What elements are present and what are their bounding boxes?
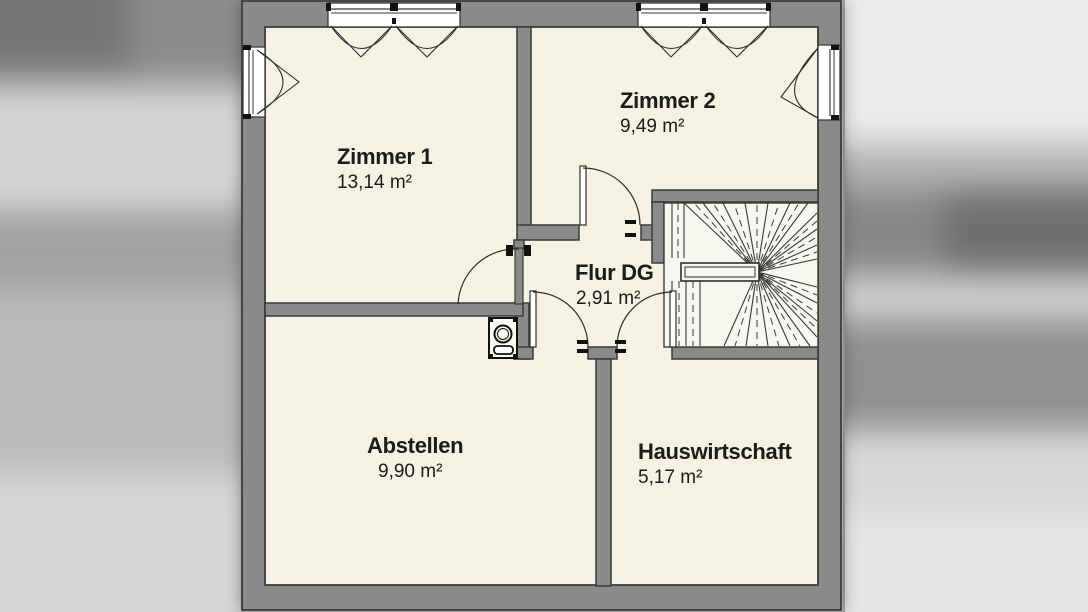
winder-staircase-icon [664, 203, 818, 347]
room-label-hauswirtschaft: Hauswirtschaft 5,17 m² [638, 440, 792, 488]
room-area: 5,17 m² [638, 468, 792, 488]
room-label-flur-dg: Flur DG 2,91 m² [575, 261, 654, 309]
room-label-zimmer-2: Zimmer 2 9,49 m² [620, 89, 715, 137]
room-area: 2,91 m² [576, 289, 654, 309]
room-area: 9,90 m² [378, 462, 463, 482]
room-area: 9,49 m² [620, 117, 715, 137]
floor-plan-drawing [0, 0, 1088, 612]
room-name: Flur DG [575, 261, 654, 285]
floor-plan: Zimmer 1 13,14 m² Zimmer 2 9,49 m² Flur … [0, 0, 1088, 612]
washing-machine-icon [489, 318, 517, 358]
room-name: Abstellen [367, 434, 463, 458]
stair-handrail [681, 263, 759, 281]
room-name: Hauswirtschaft [638, 440, 792, 464]
room-name: Zimmer 2 [620, 89, 715, 113]
room-name: Zimmer 1 [337, 145, 432, 169]
room-area: 13,14 m² [337, 173, 432, 193]
room-label-abstellen: Abstellen 9,90 m² [367, 434, 463, 482]
room-label-zimmer-1: Zimmer 1 13,14 m² [337, 145, 432, 193]
floor-plan-screenshot: { "floorplan": { "floor": "DG", "rooms":… [0, 0, 1088, 612]
